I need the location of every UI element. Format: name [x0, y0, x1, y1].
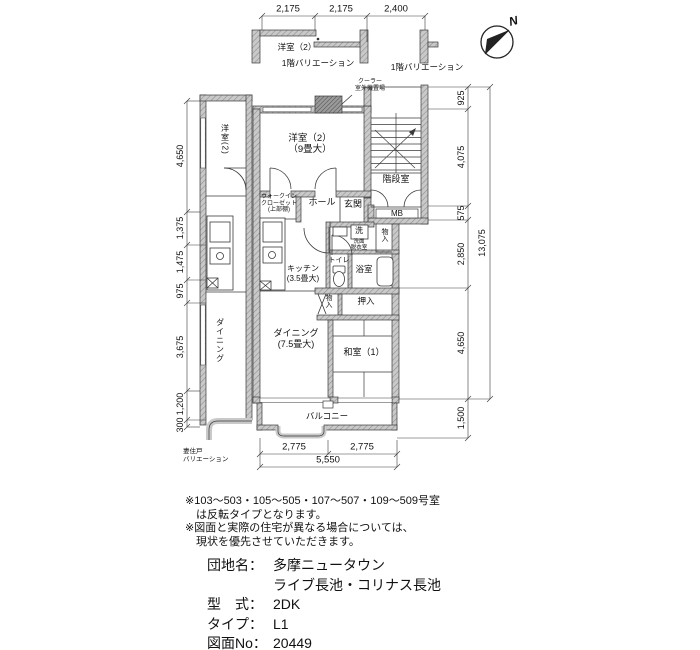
kitchen-line1: キッチン [287, 264, 319, 274]
cooler-label: クーラー 室外機置場 [355, 79, 385, 92]
western-room-line1: 洋室（2） [288, 133, 331, 144]
compass-icon [481, 26, 513, 58]
info-value-plan-type: L1 [273, 615, 289, 635]
tatami-lines [333, 320, 392, 397]
left-strip-room-label: 洋室(2) [220, 124, 231, 155]
western-room-label: 洋室（2） （9畳大） [288, 133, 331, 156]
dim-left-1: 4,650 [175, 145, 185, 168]
dining-label: ダイニング (7.5畳大) [273, 328, 318, 350]
kitchen-line2: (3.5畳大) [287, 274, 319, 284]
floorplan-page: N 洋室（2） 1階バリエーション 1階バリエーション クーラー 室外機置場 洋… [0, 0, 700, 650]
info-row-drawing-no: 図面No： 20449 [207, 634, 441, 650]
variation-floor1-label-right: 1階バリエーション [391, 62, 464, 72]
notes-block: ※103～503・105～505・107～507・109～509号室 は反転タイ… [185, 495, 440, 549]
dim-left-7: 300 [175, 417, 185, 432]
stairwell-stairs [371, 87, 421, 173]
western-room-line2: （9畳大） [288, 144, 331, 155]
dim-top-1: 2,175 [276, 4, 300, 15]
dim-right-5: 4,650 [456, 332, 466, 355]
info-block: 団地名： 多摩ニュータウン ライブ長池・コリナス長池 型 式： 2DK タイプ：… [207, 556, 441, 650]
cooler-line1: クーラー [355, 79, 385, 86]
closet-line1: ウォークイン [261, 194, 297, 201]
washer-label: 洗 [355, 226, 363, 236]
stairwell-label: 階段室 [382, 174, 409, 185]
dim-bottom-total: 5,550 [316, 455, 340, 466]
dining-line2: (7.5畳大) [273, 339, 318, 350]
variation-room-label: 洋室（2） [278, 42, 317, 52]
end-unit-line1: 妻住戸 [183, 448, 228, 456]
info-value-type: 2DK [273, 595, 300, 615]
end-unit-variation-label: 妻住戸 バリエーション [183, 448, 228, 464]
walkin-closet-label: ウォークイン クローゼット (上部棚) [261, 194, 297, 214]
hall-label: ホール [308, 197, 335, 208]
info-row-type: 型 式： 2DK [207, 595, 441, 615]
info-row-danchi2: ライブ長池・コリナス長池 [207, 576, 441, 596]
note-line3: ※図面と実際の住宅が異なる場合については、 [185, 522, 440, 536]
entrance-label: 玄関 [344, 199, 362, 210]
dim-right-2: 4,075 [456, 146, 466, 169]
variation-floor1-label-left: 1階バリエーション [282, 58, 355, 68]
meter-box-label: MB [391, 209, 403, 219]
washroom-label: 洗面 脱衣室 [351, 239, 368, 251]
info-value-danchi2: ライブ長池・コリナス長池 [273, 576, 441, 596]
info-label-plan-type: タイプ： [207, 615, 273, 635]
left-strip-interior [206, 168, 246, 292]
dim-left-4: 975 [175, 283, 185, 298]
japanese-room-label: 和室（1） [343, 347, 384, 358]
dim-top-2: 2,175 [329, 4, 353, 15]
dim-top-3: 2,400 [384, 4, 408, 15]
bath-label: 浴室 [355, 264, 372, 274]
end-unit-line2: バリエーション [183, 456, 228, 464]
kitchen-label: キッチン (3.5畳大) [287, 264, 319, 283]
toilet-label: トイレ [329, 257, 350, 265]
info-row-plan-type: タイプ： L1 [207, 615, 441, 635]
closet-line3: (上部棚) [261, 207, 297, 214]
info-label-type: 型 式： [207, 595, 273, 615]
dim-left-2: 1,375 [175, 217, 185, 240]
info-label-danchi: 団地名： [207, 556, 273, 576]
dim-bottom-2: 2,775 [350, 442, 374, 453]
dim-right-6: 1,500 [456, 407, 466, 430]
dim-right-3: 575 [456, 205, 466, 220]
info-label-danchi2 [207, 576, 273, 596]
dim-left-3: 1,475 [175, 251, 185, 274]
note-line4: 現状を優先させていただきます。 [185, 536, 440, 550]
cooler-line2: 室外機置場 [355, 86, 385, 93]
dim-right-1: 925 [456, 90, 466, 105]
info-value-danchi: 多摩ニュータウン [273, 556, 385, 576]
cooler-leader-line [342, 95, 352, 104]
note-line2: は反転タイプとなります。 [185, 509, 440, 523]
variation-fragment-right [420, 30, 438, 63]
dim-right-4: 2,850 [456, 243, 466, 266]
info-row-danchi: 団地名： 多摩ニュータウン [207, 556, 441, 576]
storage-lower-label: 物入 [323, 294, 333, 308]
dim-left-5: 3,675 [175, 336, 185, 359]
dining-line1: ダイニング [273, 328, 318, 339]
note-line1: ※103～503・105～505・107～507・109～509号室 [185, 495, 440, 509]
stair-hall-doors [371, 190, 421, 207]
washroom-line2: 脱衣室 [351, 245, 368, 251]
info-label-drawing-no: 図面No： [207, 634, 273, 650]
floorplan-drawing [0, 0, 700, 650]
oshiire-label: 押入 [357, 296, 374, 306]
dim-bottom-1: 2,775 [282, 442, 306, 453]
storage-upper-label: 物入 [379, 228, 389, 242]
left-strip-balcony-curve [209, 421, 252, 440]
balcony-dip [278, 426, 324, 436]
left-strip-dining-label: ダイニング [215, 318, 226, 363]
dim-left-6: 1,200 [175, 393, 185, 416]
dim-right-total: 13,075 [477, 229, 487, 257]
info-value-drawing-no: 20449 [273, 634, 312, 650]
balcony-label: バルコニー [306, 411, 348, 421]
